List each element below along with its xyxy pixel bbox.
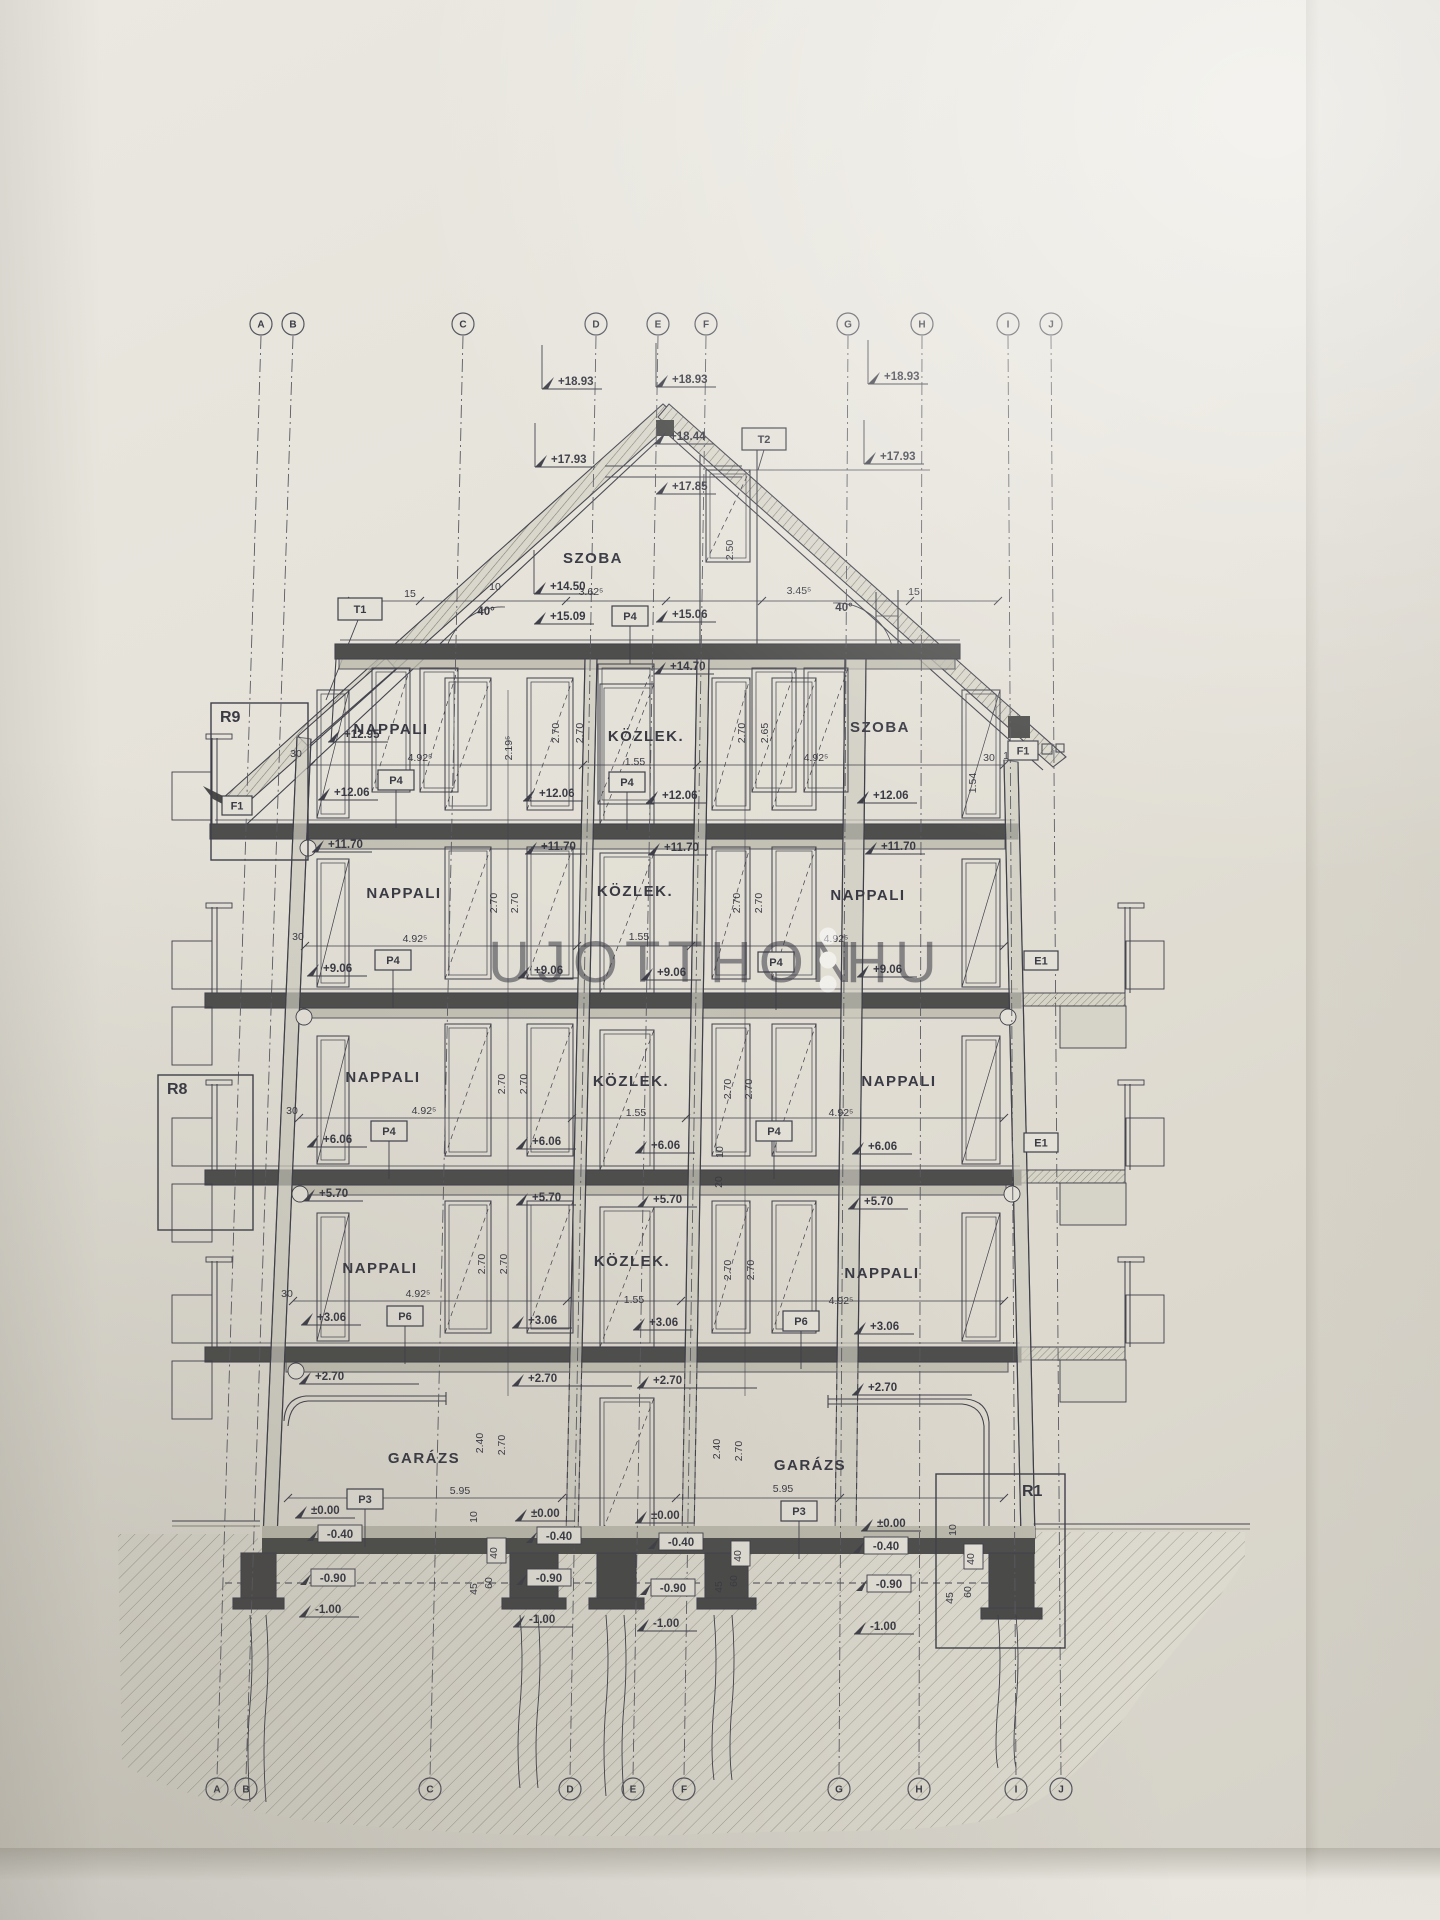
dimension-label: 45 [713, 1581, 725, 1593]
dimension-label: 45 [468, 1583, 480, 1595]
watermark-text-main: UJOTTHON [488, 930, 860, 995]
detail-tag-E1: E1 [1024, 1133, 1058, 1152]
elevation-mark: +18.93 [868, 340, 928, 384]
railing-panel [1126, 1295, 1164, 1343]
grid-letter: B [242, 1785, 249, 1796]
watermark-dot-icon [820, 928, 837, 945]
grid-bubble-D: D [585, 313, 607, 335]
dimension-label: 2.19⁵ [503, 736, 515, 761]
elevation-mark: +15.06 [656, 609, 716, 622]
elevation-value: +3.06 [870, 1321, 899, 1333]
detail-tag-label: P4 [767, 1126, 781, 1138]
elevation-triangle-icon [637, 1376, 649, 1388]
detail-tag-label: P4 [623, 611, 637, 623]
elevation-value: ±0.00 [877, 1518, 906, 1530]
foundation-pad [597, 1553, 636, 1598]
elevation-value: +18.93 [672, 374, 708, 386]
dimension-label: 4.92⁵ [406, 1288, 431, 1300]
balcony-screen [172, 1007, 212, 1065]
detail-tag-label: P3 [358, 1494, 371, 1506]
elevation-value: +6.06 [532, 1136, 561, 1148]
elevation-value: +2.70 [528, 1373, 557, 1385]
joint-detail-circle [1000, 1009, 1016, 1025]
dimension-label: 2.70 [550, 723, 562, 744]
elevation-mark: +3.06 [633, 1317, 693, 1330]
elevation-value: -0.90 [320, 1573, 346, 1585]
dimension-label: 15 [908, 586, 920, 598]
railing-cap [206, 903, 232, 908]
elevation-value: +9.06 [323, 963, 352, 975]
dimension-label: 5.95 [450, 1485, 471, 1497]
dimension-label: 30 [983, 752, 995, 764]
elevation-triangle-icon [328, 730, 340, 742]
foundation-base [981, 1608, 1042, 1619]
detail-tag-label: P4 [382, 1126, 396, 1138]
elevation-value: +11.70 [664, 842, 699, 854]
room-label: KÖZLEK. [594, 1253, 670, 1270]
elevation-value: -0.40 [873, 1541, 899, 1553]
railing-panel [172, 772, 212, 820]
opening-diagonal [600, 1207, 654, 1347]
balcony-soffit-box [1060, 1360, 1126, 1402]
railing-cap [206, 1257, 232, 1262]
window-inner [776, 682, 812, 806]
room-label: NAPPALI [844, 1265, 919, 1282]
grid-letter: I [1007, 320, 1010, 331]
foundation-pad [241, 1553, 276, 1598]
dimension-label: 60 [728, 1575, 740, 1587]
elevation-triangle-icon [515, 1509, 527, 1521]
room-label: SZOBA [563, 550, 623, 567]
elevation-value: +18.44 [670, 431, 706, 443]
balcony-screen [172, 1361, 212, 1419]
floor-slab [335, 644, 960, 659]
dimension-label: 30 [290, 748, 302, 760]
railing-cap [1118, 1080, 1144, 1085]
opening-diagonal [445, 847, 491, 979]
elevation-value: +6.06 [651, 1140, 680, 1152]
elevation-triangle-icon [301, 1313, 313, 1325]
boxed-dimension: 40 [731, 1541, 750, 1566]
detail-tag-label: F1 [1017, 746, 1030, 758]
dimension-label: 2.70 [509, 893, 521, 914]
railing-cap [1118, 1257, 1144, 1262]
room-label: NAPPALI [342, 1260, 417, 1277]
dimension-label: 45 [944, 1592, 956, 1604]
joint-detail-circle [1004, 1186, 1020, 1202]
elevation-value: +14.70 [670, 661, 706, 673]
elevation-value: +5.70 [319, 1188, 348, 1200]
elevation-triangle-icon [535, 455, 547, 467]
dimension-label: 4.92⁵ [829, 1295, 854, 1307]
elevation-value: +5.70 [532, 1192, 561, 1204]
balcony-slab [1021, 1170, 1125, 1183]
elevation-mark: +6.06 [307, 1134, 367, 1147]
detail-tag-label: E1 [1034, 1138, 1047, 1150]
grid-letter: H [915, 1785, 922, 1796]
elevation-value: +18.93 [884, 371, 920, 383]
elevation-mark: +17.85 [656, 481, 716, 494]
photographed-blueprint: AABBCCDDEEFFGGHHIIJJ SZOBANAPPALIKÖZLEK.… [0, 0, 1440, 1920]
wall-fill [263, 737, 311, 1538]
balcony-soffit-box [1060, 1183, 1126, 1225]
elevation-mark: +3.06 [301, 1312, 361, 1325]
grid-letter: C [459, 320, 466, 331]
dimension-label: 1.55 [626, 1107, 647, 1119]
watermark-dot-icon [820, 952, 837, 969]
elevation-triangle-icon [864, 452, 876, 464]
elevation-mark: +6.06 [516, 1136, 576, 1149]
elevation-triangle-icon [656, 610, 668, 622]
elevation-triangle-icon [534, 582, 546, 594]
elevation-value: +17.93 [551, 454, 587, 466]
grid-bubble-A: A [250, 313, 272, 335]
elevation-value: +15.06 [672, 609, 708, 621]
elevation-triangle-icon [512, 1316, 524, 1328]
grid-bubble-I: I [997, 313, 1019, 335]
window-inner [449, 682, 487, 806]
dimension-label: 4.92⁵ [403, 933, 428, 945]
elevation-value: -0.90 [660, 1583, 686, 1595]
elevation-triangle-icon [646, 791, 658, 803]
dimension-label: 60 [962, 1586, 974, 1598]
dimension-label: 2.70 [496, 1435, 508, 1456]
dimension-label: 4.92⁵ [412, 1105, 437, 1117]
dimension-label: 2.70 [736, 723, 748, 744]
grid-letter: F [681, 1785, 687, 1796]
opening-diagonal [445, 1024, 491, 1156]
elevation-value: -1.00 [870, 1621, 896, 1633]
grid-letter: G [835, 1785, 843, 1796]
dimension-label: 3.45⁵ [787, 585, 812, 597]
elevation-triangle-icon [635, 1141, 647, 1153]
slab-soffit [299, 1008, 1006, 1018]
elevation-mark: +15.09 [534, 611, 594, 624]
elevation-value: +11.70 [328, 839, 363, 851]
elevation-mark: +12.06 [646, 790, 706, 803]
grid-bubble-J: J [1040, 313, 1062, 335]
elevation-value: -0.40 [327, 1529, 353, 1541]
elevation-mark: +17.93 [535, 423, 595, 467]
grid-letter: D [566, 1785, 573, 1796]
elevation-value: ±0.00 [651, 1510, 680, 1522]
elevation-mark: +18.93 [542, 345, 602, 389]
elevation-value: -0.90 [876, 1579, 902, 1591]
elevation-triangle-icon [516, 1137, 528, 1149]
dimension-label: 40° [477, 606, 495, 618]
room-label: GARÁZS [388, 1450, 460, 1467]
elevation-triangle-icon [656, 375, 668, 387]
dimension-label: 1.55 [625, 756, 646, 768]
elevation-value: +5.70 [864, 1196, 893, 1208]
elevation-value: +11.70 [541, 841, 576, 853]
room-label: SZOBA [850, 719, 910, 736]
elevation-value: +6.06 [868, 1141, 897, 1153]
detail-tag-P4: P4 [378, 770, 414, 828]
elevation-value: -0.40 [668, 1537, 694, 1549]
dimension-label: 2.70 [753, 893, 765, 914]
dimension-label: 15 [404, 588, 416, 600]
elevation-value: -1.00 [315, 1604, 341, 1616]
opening-diagonal [804, 668, 848, 792]
elevation-mark: +12.06 [857, 790, 917, 803]
grid-bubble-F: F [695, 313, 717, 335]
dimension-label: 2.70 [722, 1079, 734, 1100]
elevation-value: +5.70 [653, 1194, 682, 1206]
grid-letter: B [289, 320, 296, 331]
grid-bubble-H: H [911, 313, 933, 335]
elevation-mark: +9.06 [307, 963, 367, 976]
elevation-value: -0.90 [536, 1573, 562, 1585]
elevation-mark: +12.06 [318, 787, 378, 800]
elevation-triangle-icon [868, 372, 880, 384]
grid-letter: C [426, 1785, 433, 1796]
elevation-value: +17.85 [672, 481, 708, 493]
elevation-mark: ±0.00 [295, 1505, 355, 1518]
dimension-label: 2.70 [722, 1260, 734, 1281]
grid-letter: A [213, 1785, 220, 1796]
elevation-value: +12.95 [344, 729, 380, 741]
railing-cap [206, 734, 232, 739]
railing-panel [172, 941, 212, 989]
dimension-label: 30 [292, 931, 304, 943]
slab-soffit [286, 1362, 1008, 1372]
detail-tag-label: T1 [354, 604, 367, 616]
room-label: KÖZLEK. [593, 1073, 669, 1090]
dimension-label: 2.70 [745, 1260, 757, 1281]
elevation-value: +2.70 [653, 1375, 682, 1387]
window-inner [449, 1028, 487, 1152]
opening-diagonal [445, 678, 491, 810]
detail-tag-label: P3 [792, 1506, 805, 1518]
elevation-triangle-icon [656, 482, 668, 494]
dimension-label: 10 [489, 581, 501, 593]
detail-region-label: R8 [167, 1081, 188, 1098]
dimension-label: 4.92⁵ [408, 752, 433, 764]
balcony-slab [1021, 993, 1125, 1006]
grid-bubble-C: C [452, 313, 474, 335]
elevation-value: -1.00 [653, 1618, 679, 1630]
foundation-pad [989, 1553, 1034, 1608]
grid-bubble-E: E [647, 313, 669, 335]
detail-region-label: R1 [1022, 1483, 1043, 1500]
dimension-label: 2.70 [496, 1074, 508, 1095]
elevation-value: +2.70 [868, 1382, 897, 1394]
detail-tag-label: E1 [1034, 956, 1047, 968]
detail-tag-T2: T2 [742, 428, 786, 450]
elevation-value: +11.70 [881, 841, 916, 853]
grid-letter: D [592, 320, 599, 331]
room-label: KÖZLEK. [597, 883, 673, 900]
floor-slab [210, 824, 1018, 839]
opening-diagonal [527, 1201, 573, 1333]
elevation-mark: +17.93 [864, 420, 924, 464]
dimension-label: 2.70 [476, 1254, 488, 1275]
dimension-label: 40 [732, 1550, 744, 1562]
detail-tag-label: P4 [386, 955, 400, 967]
detail-tag-label: P6 [398, 1311, 411, 1323]
elevation-mark: +2.70 [299, 1371, 419, 1384]
opening-diagonal [962, 859, 1000, 987]
grid-bubble-G: G [837, 313, 859, 335]
grid-letter: H [918, 320, 925, 331]
grid-letter: J [1048, 320, 1054, 331]
watermark-dot-icon [820, 976, 837, 993]
elevation-triangle-icon [635, 1511, 647, 1523]
joint-detail-circle [288, 1363, 304, 1379]
dimension-label: 10 [468, 1511, 480, 1523]
dimension-label: 2.50 [724, 540, 736, 561]
detail-tag-label: F1 [231, 801, 244, 813]
watermark-logo: UJOTTHONHU [488, 928, 944, 996]
opening-diagonal [962, 1213, 1000, 1341]
detail-tag-E1: E1 [1024, 951, 1058, 970]
dimension-label: 2.40 [474, 1433, 486, 1454]
dimension-label: 40° [835, 602, 853, 614]
grid-letter: J [1058, 1785, 1064, 1796]
dimension-label: 10 [714, 1146, 726, 1158]
elevation-value: +3.06 [528, 1315, 557, 1327]
dimension-label: 2.70 [731, 893, 743, 914]
elevation-value: -0.40 [546, 1531, 572, 1543]
dimension-label: 4.92⁵ [829, 1107, 854, 1119]
room-label: GARÁZS [774, 1457, 846, 1474]
dimension-label: 2.70 [498, 1254, 510, 1275]
room-label: NAPPALI [861, 1073, 936, 1090]
dimension-label: 1.54 [967, 773, 979, 794]
grid-letter: E [655, 320, 662, 331]
detail-tag-F1: F1 [222, 796, 252, 815]
watermark-text-suffix: HU [846, 930, 944, 995]
dimension-label: 2.70 [743, 1079, 755, 1100]
elevation-triangle-icon [534, 612, 546, 624]
joint-detail-circle [296, 1009, 312, 1025]
slab-soffit [292, 1185, 1006, 1195]
elevation-value: +17.93 [880, 451, 916, 463]
elevation-mark: +3.06 [854, 1321, 914, 1334]
grid-letter: A [257, 320, 264, 331]
balcony-soffit-box [1060, 1006, 1126, 1048]
opening-diagonal [600, 1398, 654, 1538]
window-inner [531, 1028, 569, 1152]
grid-letter: E [630, 1785, 637, 1796]
opening-diagonal [962, 1036, 1000, 1164]
floor-slab [205, 993, 1021, 1008]
boxed-dimension: 40 [964, 1544, 983, 1569]
elevation-triangle-icon [633, 1318, 645, 1330]
elevation-value: -1.00 [529, 1614, 555, 1626]
watermark: UJOTTHONHU [488, 928, 944, 996]
detail-tag-label: P6 [794, 1316, 807, 1328]
elevation-triangle-icon [542, 377, 554, 389]
railing-panel [172, 1295, 212, 1343]
foundation-base [233, 1598, 284, 1609]
dimension-label: 2.65 [759, 723, 771, 744]
elevation-value: +12.06 [539, 788, 575, 800]
elevation-value: +6.06 [323, 1134, 352, 1146]
grid-letter: G [844, 320, 852, 331]
dimension-label: 2.70 [488, 893, 500, 914]
elevation-triangle-icon [295, 1506, 307, 1518]
room-label: NAPPALI [366, 885, 441, 902]
elevation-mark: +18.93 [656, 343, 716, 387]
grid-bubble-B: B [282, 313, 304, 335]
dimension-label: 4.92⁵ [804, 752, 829, 764]
detail-tag-label: P4 [620, 777, 634, 789]
foundation-base [697, 1598, 756, 1609]
opening-diagonal [772, 678, 816, 810]
elevation-value: +18.93 [558, 376, 594, 388]
window-inner [449, 851, 487, 975]
dimension-label: 2.70 [574, 723, 586, 744]
elevation-value: +12.06 [873, 790, 909, 802]
railing-cap [1118, 903, 1144, 908]
elevation-value: +3.06 [649, 1317, 678, 1329]
railing-panel [1126, 941, 1164, 989]
railing-panel [1126, 1118, 1164, 1166]
detail-region-label: R9 [220, 709, 241, 726]
elevation-mark: +2.70 [852, 1382, 972, 1395]
dimension-label: 2.70 [518, 1074, 530, 1095]
elevation-value: +15.09 [550, 611, 586, 623]
dimension-label: 2.40 [711, 1439, 723, 1460]
dimension-label: 40 [488, 1547, 500, 1559]
elevation-value: +12.06 [662, 790, 698, 802]
dimension-label: 40 [965, 1553, 977, 1565]
railing-panel [172, 1118, 212, 1166]
elevation-value: ±0.00 [311, 1505, 340, 1517]
detail-tag-F1: F1 [1008, 741, 1038, 760]
dimension-label: 10 [947, 1524, 959, 1536]
dimension-label: 3.62⁵ [579, 586, 604, 598]
detail-tag-label: T2 [758, 434, 771, 446]
dimension-label: 5.95 [773, 1483, 794, 1495]
dimension-label: 30 [281, 1288, 293, 1300]
detail-tag-P4: P4 [609, 772, 645, 830]
dimension-label: 30 [286, 1105, 298, 1117]
elevation-value: +12.06 [334, 787, 370, 799]
balcony-screen [172, 1184, 212, 1242]
balcony-slab [1021, 1347, 1125, 1360]
foundation-base [502, 1598, 566, 1609]
floor-slab [205, 1347, 1021, 1362]
elevation-triangle-icon [523, 789, 535, 801]
building-section-svg: AABBCCDDEEFFGGHHIIJJ SZOBANAPPALIKÖZLEK.… [0, 0, 1440, 1920]
boxed-dimension: 40 [487, 1538, 506, 1563]
railing-cap [206, 1080, 232, 1085]
room-label: NAPPALI [345, 1069, 420, 1086]
elevation-mark: +12.06 [523, 788, 583, 801]
room-label: NAPPALI [830, 887, 905, 904]
dimension-label: 20 [713, 1176, 725, 1188]
dimension-label: 2.70 [733, 1441, 745, 1462]
grid-letter: F [703, 320, 709, 331]
window-inner [531, 1205, 569, 1329]
room-label: KÖZLEK. [608, 728, 684, 745]
dimension-label: 60 [483, 1577, 495, 1589]
grid-letter: I [1015, 1785, 1018, 1796]
walls [263, 659, 1035, 1538]
elevation-triangle-icon [512, 1374, 524, 1386]
elevation-value: ±0.00 [531, 1508, 560, 1520]
detail-tag-T1: T1 [338, 598, 382, 620]
dimension-label: 1.55 [624, 1294, 645, 1306]
floor-slab [205, 1170, 1021, 1185]
elevation-value: +3.06 [317, 1312, 346, 1324]
detail-tag-label: P4 [389, 775, 403, 787]
elevation-mark: +3.06 [512, 1315, 572, 1328]
elevation-value: +2.70 [315, 1371, 344, 1383]
